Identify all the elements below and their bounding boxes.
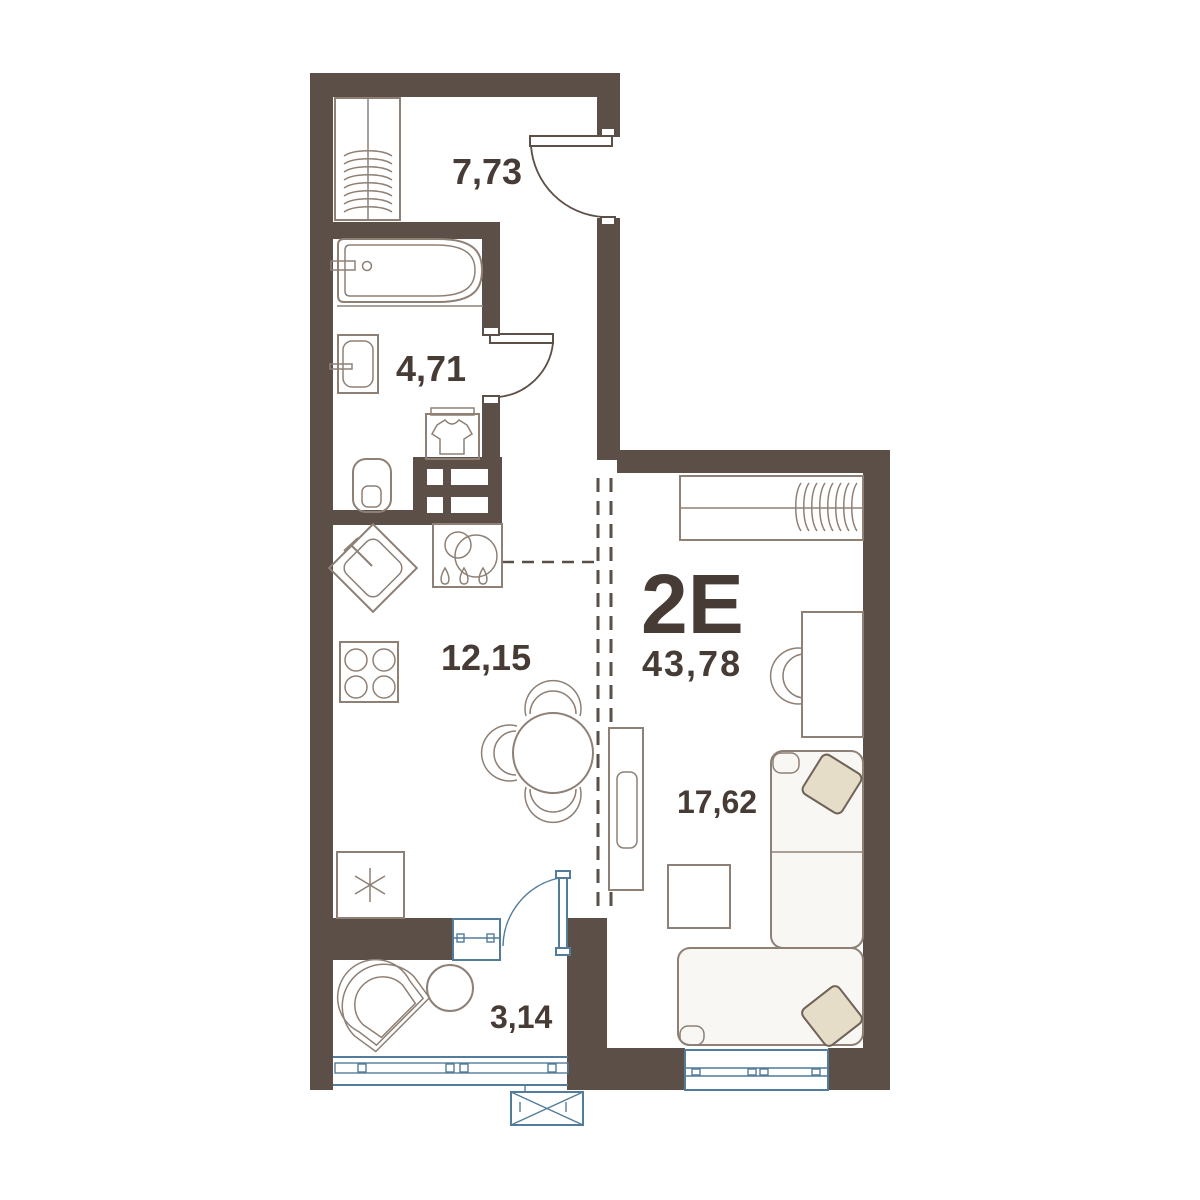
dining-chair — [530, 691, 576, 714]
floor-plan-page: 7,73 4,71 12,15 17,62 3,14 2Е 43,78 — [0, 0, 1200, 1200]
glazing-mullion — [548, 1064, 556, 1072]
entrance-door-jamb — [601, 217, 615, 225]
hall-wardrobe — [335, 98, 400, 220]
glazing-mullion — [358, 1064, 366, 1072]
water-drop-icon — [441, 568, 449, 584]
balcony-side-table — [427, 965, 473, 1011]
floor-plan-svg: 7,73 4,71 12,15 17,62 3,14 2Е 43,78 — [0, 0, 1200, 1200]
total-area-label: 43,78 — [642, 643, 742, 684]
bathroom-door-swing-arc — [499, 343, 553, 397]
room-label-living: 17,62 — [677, 784, 757, 820]
balcony-door-jamb — [556, 871, 570, 878]
stove-burner — [373, 676, 395, 698]
balcony-door — [503, 871, 570, 955]
room-label-bathroom: 4,71 — [396, 348, 466, 389]
glazing-mullion — [446, 1064, 454, 1072]
stove-burner — [345, 676, 367, 698]
room-label-balcony: 3,14 — [490, 999, 552, 1035]
tv-console — [609, 728, 643, 890]
wall-top-outer — [310, 73, 620, 97]
vent-shaft-hole — [427, 469, 443, 485]
stove-burner — [345, 649, 367, 671]
wall-hall-bath — [333, 222, 500, 239]
kitchen-sink — [329, 524, 417, 612]
washing-machine — [426, 408, 479, 459]
vent-shaft-hole — [427, 497, 443, 513]
snowflake-icon — [355, 868, 385, 902]
dishwasher-plate — [455, 535, 497, 577]
wall-bath-right-upper — [482, 238, 500, 330]
entrance-door-jamb — [601, 128, 615, 136]
entrance-door — [530, 128, 615, 225]
living-room-window — [685, 1050, 828, 1090]
wall-left-outer — [310, 73, 333, 1090]
air-conditioner-unit — [511, 1085, 583, 1125]
washbasin — [330, 335, 378, 393]
wall-bottom-right-of-window — [828, 1048, 890, 1090]
bathroom-door — [483, 327, 553, 404]
window-frame — [453, 919, 500, 960]
bathtub-faucet — [331, 261, 355, 270]
vent-shaft — [413, 457, 502, 525]
bathtub — [331, 239, 483, 306]
desk-area — [771, 612, 863, 737]
balcony-door-swing-arc — [503, 878, 559, 946]
bathtub-drain — [363, 262, 372, 271]
desk — [802, 612, 863, 737]
bathroom-door-jamb — [483, 396, 499, 404]
refrigerator — [337, 852, 404, 918]
wall-right-outer — [863, 450, 890, 1090]
desk-chair — [771, 648, 806, 704]
entrance-door-leaf — [530, 136, 612, 146]
wall-balcony-right — [567, 918, 607, 1050]
wall-corridor-right — [597, 218, 620, 460]
dishwasher — [433, 524, 502, 587]
vent-shaft-hole — [451, 469, 488, 485]
wall-living-top — [617, 450, 890, 473]
bathroom-door-jamb — [483, 327, 499, 335]
toilet — [353, 459, 391, 512]
washing-machine-body — [426, 414, 479, 459]
vent-shaft-hole — [451, 497, 488, 513]
balcony-door-leaf — [559, 877, 567, 949]
living-wardrobe — [680, 476, 863, 540]
room-label-hallway: 7,73 — [452, 151, 522, 192]
stove — [340, 642, 398, 702]
wall-bottom-left-of-window — [567, 1048, 685, 1090]
unit-label: 2Е — [641, 557, 744, 651]
balcony-door-hinge — [556, 948, 570, 955]
dining-table — [513, 713, 593, 793]
entrance-door-swing-arc — [531, 146, 603, 217]
balcony-glazing — [333, 1057, 568, 1085]
zone-partition-dashed — [502, 478, 611, 908]
dining-chair — [482, 725, 517, 781]
balcony-kitchen-window — [453, 919, 500, 960]
wall-kitchen-balcony — [333, 918, 453, 960]
kitchen-sink-faucet — [351, 545, 372, 566]
lounge-chair-back-outer — [325, 947, 432, 1054]
coffee-table — [668, 865, 730, 928]
wall-bath-right-lower — [482, 398, 500, 458]
dining-table-group — [482, 681, 593, 823]
washbasin-faucet — [330, 364, 352, 369]
toilet-seat — [362, 486, 381, 507]
glazing-mullion — [460, 1064, 468, 1072]
tshirt-icon — [432, 420, 472, 454]
stove-burner — [373, 649, 395, 671]
dining-chair — [525, 681, 581, 716]
kitchen-sink-outer — [329, 524, 417, 612]
room-label-kitchen: 12,15 — [441, 637, 531, 678]
tv-stand — [609, 728, 643, 890]
